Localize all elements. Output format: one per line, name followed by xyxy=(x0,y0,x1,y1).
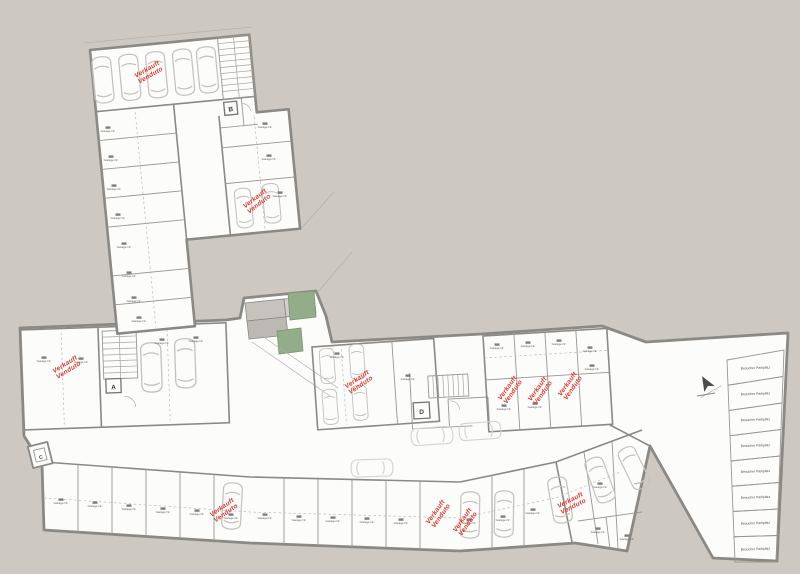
garage-unit-label: Garage Nr. xyxy=(37,359,52,363)
garage-unit-label: Garage Nr. xyxy=(496,518,511,522)
floor-plan-page: A D Besucher ParkplatzBesucher Parkplatz… xyxy=(0,0,800,574)
garage-unit-label: Garage Nr. xyxy=(526,511,541,515)
garage-unit-label: Garage Nr. xyxy=(189,339,204,343)
garage-unit-label: Garage Nr. xyxy=(583,349,598,353)
garage-unit-label: Garage Nr. xyxy=(117,245,132,249)
garage-unit-label: Garage Nr. xyxy=(497,407,512,411)
garage-unit-label: Garage Nr. xyxy=(155,341,170,345)
garage-unit-label: Garage Nr. xyxy=(127,299,142,303)
elevator-d-letter: D xyxy=(419,409,424,416)
garage-unit-label: Garage Nr. xyxy=(156,510,171,514)
garage-unit-label: Garage Nr. xyxy=(122,507,137,511)
elevator-a-letter: A xyxy=(111,384,116,391)
garage-unit-label: Garage Nr. xyxy=(258,125,273,129)
garage-unit-label: Garage Nr. xyxy=(521,344,536,348)
garage-unit-label: Garage Nr. xyxy=(401,377,416,381)
garage-unit-label: Garage Nr. xyxy=(528,405,543,409)
planter xyxy=(277,328,303,354)
garage-unit-label: Garage Nr. xyxy=(552,342,567,346)
garage-unit-label: Garage Nr. xyxy=(262,157,277,161)
garage-unit-label: Garage Nr. xyxy=(190,512,205,516)
planter xyxy=(288,291,316,320)
garage-unit-label: Garage Nr. xyxy=(258,516,273,520)
garage-unit-label: Garage Nr. xyxy=(360,520,375,524)
garage-unit-label: Garage Nr. xyxy=(104,158,119,162)
garage-unit-label: Garage Nr. xyxy=(122,274,137,278)
garage-unit-label: Garage Nr. xyxy=(490,346,505,350)
garage-unit-label: Garage Nr. xyxy=(620,537,635,541)
garage-unit-label: Garage Nr. xyxy=(111,216,126,220)
garage-unit-label: Garage Nr. xyxy=(593,485,608,489)
garage-floor-plan: A D Besucher ParkplatzBesucher Parkplatz… xyxy=(0,0,800,574)
garage-unit-label: Garage Nr. xyxy=(591,530,606,534)
garage-unit-label: Garage Nr. xyxy=(326,519,341,523)
garage-unit-label: Garage Nr. xyxy=(132,319,147,323)
garage-unit-label: Garage Nr. xyxy=(101,129,116,133)
garage-unit-label: Garage Nr. xyxy=(54,501,69,505)
garage-unit-label: Garage Nr. xyxy=(88,504,103,508)
garage-unit-label: Garage Nr. xyxy=(585,367,600,371)
garage-unit-label: Garage Nr. xyxy=(273,194,288,198)
garage-unit-label: Garage Nr. xyxy=(330,355,345,359)
garage-unit-label: Garage Nr. xyxy=(292,518,307,522)
garage-unit-label: Garage Nr. xyxy=(394,521,409,525)
shaft-c: C xyxy=(28,442,53,468)
garage-unit-label: Garage Nr. xyxy=(107,187,122,191)
